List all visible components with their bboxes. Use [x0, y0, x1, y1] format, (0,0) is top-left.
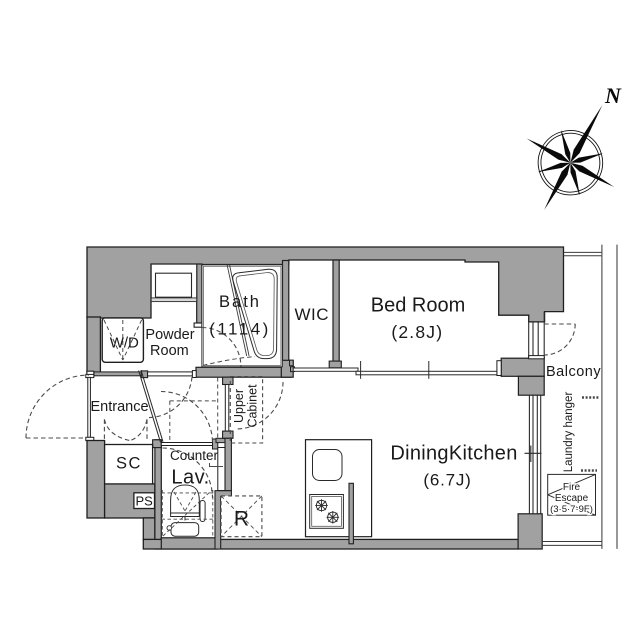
svg-text:PS: PS [136, 494, 154, 509]
svg-text:Room: Room [150, 343, 189, 359]
svg-text:R: R [234, 508, 249, 531]
svg-text:Upper: Upper [232, 389, 246, 423]
svg-text:Balcony: Balcony [546, 364, 601, 380]
svg-text:(2.8J): (2.8J) [391, 322, 443, 342]
svg-text:Escape: Escape [555, 493, 589, 504]
svg-text:SC: SC [116, 455, 142, 473]
svg-text:(1114): (1114) [209, 320, 271, 339]
svg-text:Laundry hanger: Laundry hanger [563, 392, 575, 473]
svg-text:Bath: Bath [219, 293, 261, 311]
svg-text:Bed Room: Bed Room [371, 295, 466, 317]
svg-text:Cabinet: Cabinet [246, 384, 260, 428]
svg-text:W/D: W/D [110, 335, 139, 352]
svg-text:(3·5·7·9F): (3·5·7·9F) [550, 504, 593, 515]
svg-text:Powder: Powder [145, 327, 194, 343]
svg-text:DiningKitchen: DiningKitchen [390, 443, 517, 465]
svg-text:(6.7J): (6.7J) [423, 471, 471, 490]
svg-text:N: N [604, 83, 622, 108]
svg-text:Entrance: Entrance [91, 399, 149, 415]
svg-text:Counter: Counter [170, 448, 219, 463]
svg-text:WIC: WIC [295, 305, 330, 324]
svg-text:Lav.: Lav. [171, 467, 209, 489]
svg-text:Fire: Fire [563, 482, 581, 493]
